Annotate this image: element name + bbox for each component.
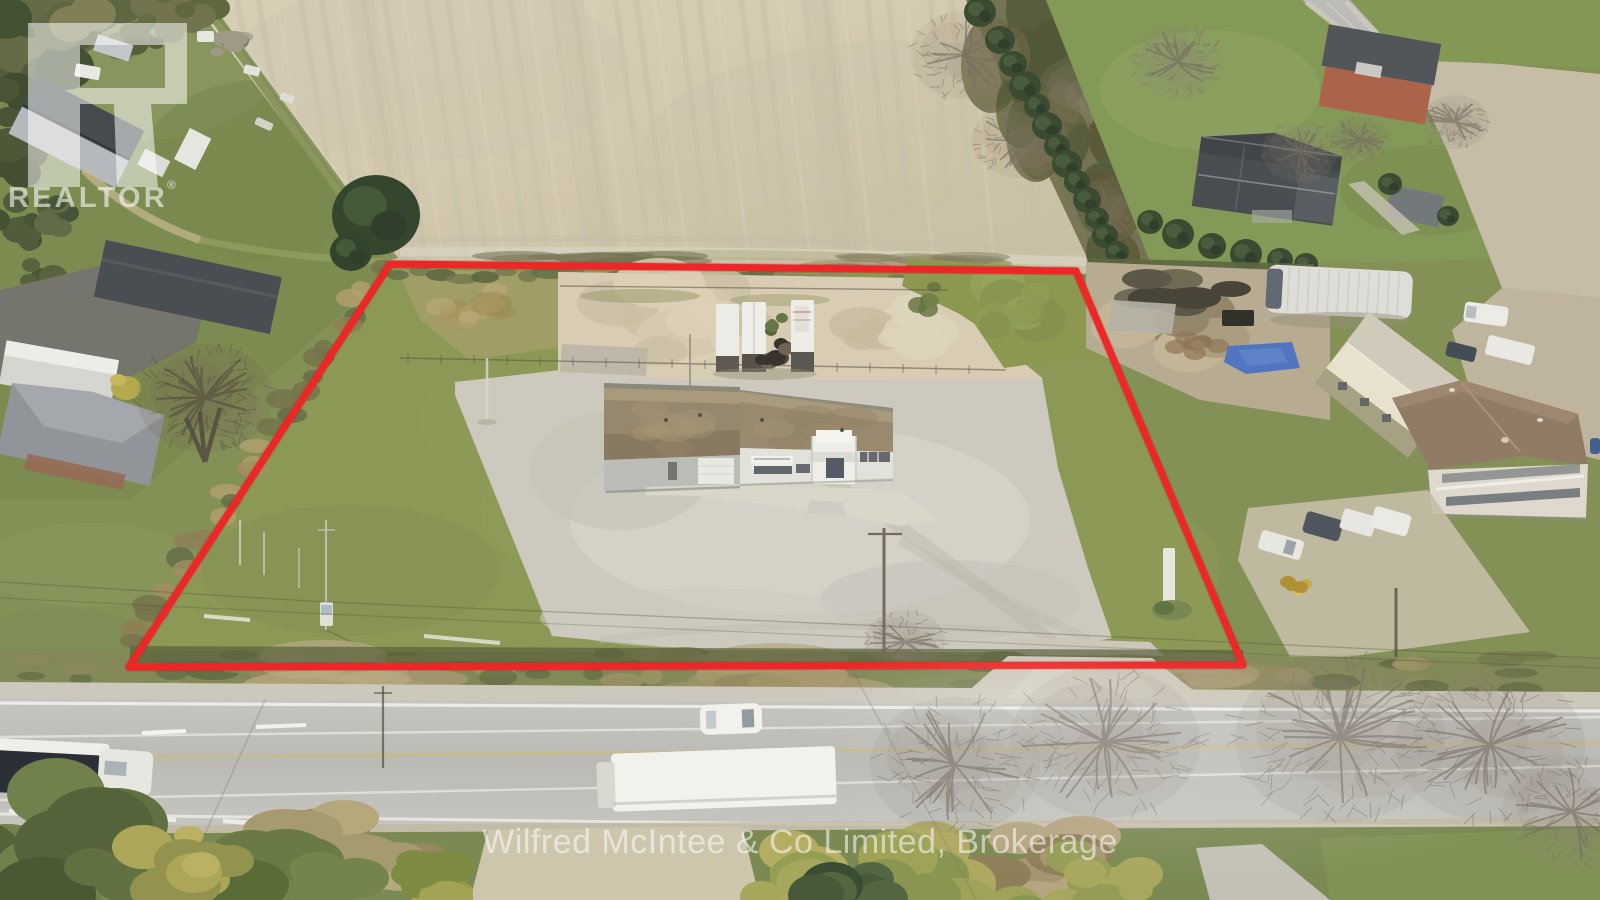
- svg-text:REALTOR: REALTOR: [8, 182, 168, 214]
- svg-text:Wilfred McIntee & Co Limited,: Wilfred McIntee & Co Limited, Brokerage: [482, 823, 1118, 861]
- svg-text:®: ®: [167, 178, 176, 192]
